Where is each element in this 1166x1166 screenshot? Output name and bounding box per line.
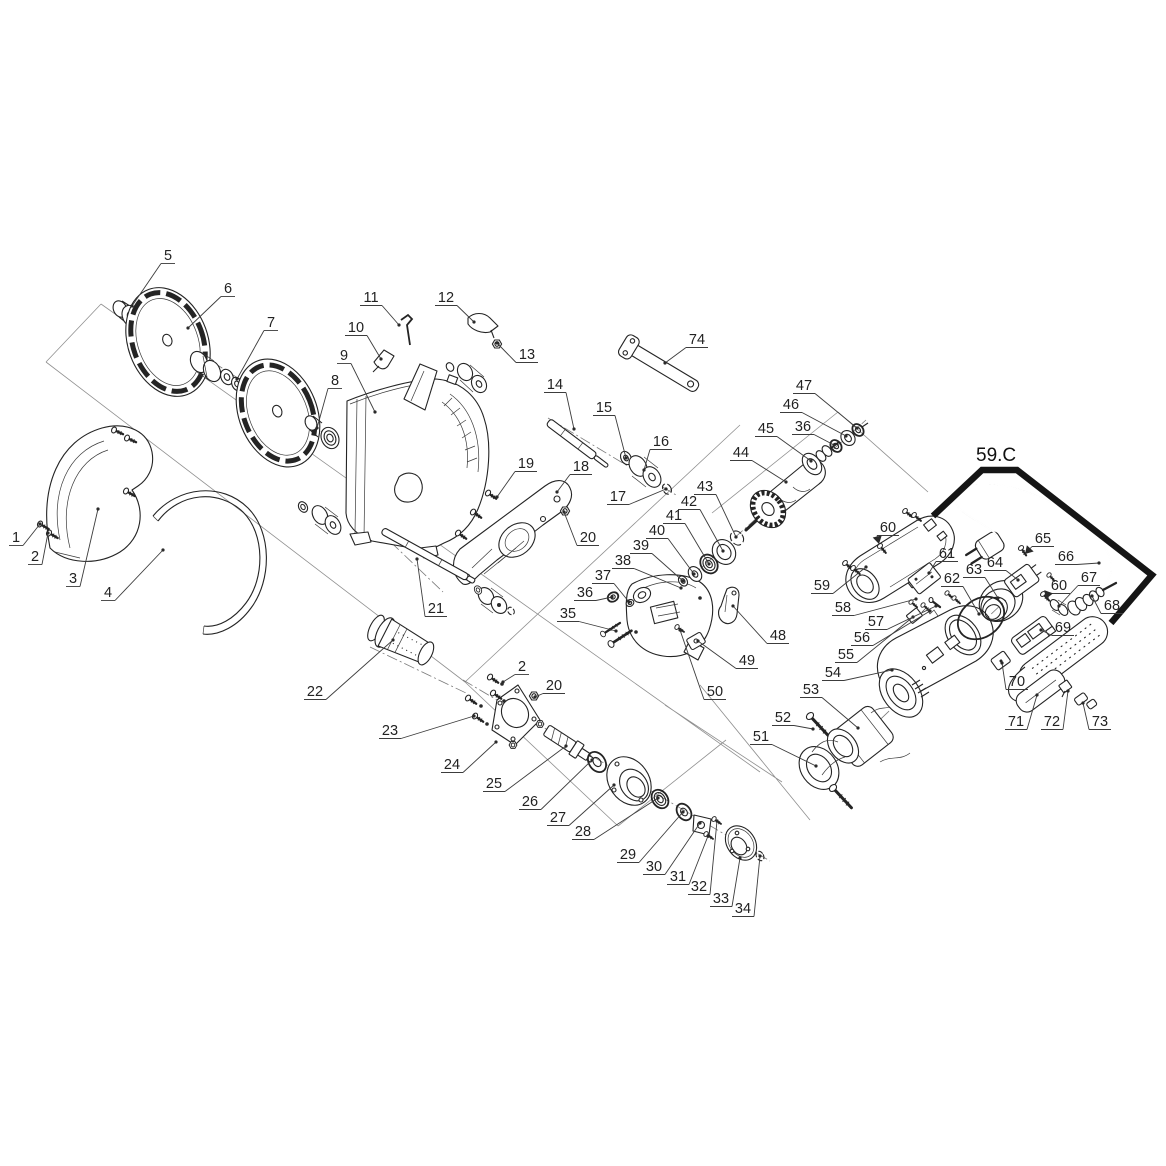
svg-text:16: 16 (653, 434, 669, 450)
svg-text:44: 44 (733, 445, 749, 461)
svg-text:32: 32 (691, 879, 707, 895)
svg-text:54: 54 (825, 665, 841, 681)
part-label-65: 65 (1025, 531, 1054, 554)
svg-text:2: 2 (518, 659, 526, 675)
svg-text:73: 73 (1092, 714, 1108, 730)
svg-text:28: 28 (575, 824, 591, 840)
part-label-1: 1 (9, 522, 42, 546)
svg-text:66: 66 (1058, 549, 1074, 565)
svg-text:39: 39 (633, 538, 649, 554)
svg-text:52: 52 (775, 710, 791, 726)
svg-text:37: 37 (595, 568, 611, 584)
svg-text:61: 61 (939, 546, 955, 562)
part-label-35: 35 (557, 606, 618, 633)
svg-text:74: 74 (689, 332, 705, 348)
svg-text:71: 71 (1008, 714, 1024, 730)
part-label-44: 44 (730, 445, 788, 484)
guide-roller-bottom (297, 500, 344, 537)
svg-text:53: 53 (803, 682, 819, 698)
bearing-28 (648, 787, 672, 812)
part-label-74: 74 (663, 332, 708, 365)
svg-text:23: 23 (382, 723, 398, 739)
svg-text:62: 62 (944, 571, 960, 587)
trigger-parts-73 (1074, 692, 1098, 709)
part-label-36: 36 (792, 419, 836, 447)
svg-text:20: 20 (546, 678, 562, 694)
exploded-parts-diagram-page: 59.C 12345678910111213141516171819202022… (0, 0, 1166, 1166)
svg-text:6: 6 (224, 281, 232, 297)
svg-text:12: 12 (438, 290, 454, 306)
svg-text:57: 57 (868, 614, 884, 630)
depth-lever (373, 350, 394, 372)
bearing-flange-27 (598, 748, 661, 814)
part-label-43: 43 (694, 479, 738, 539)
svg-text:69: 69 (1055, 620, 1071, 636)
svg-text:60: 60 (880, 520, 896, 536)
svg-text:13: 13 (519, 347, 535, 363)
svg-text:36: 36 (577, 585, 593, 601)
svg-text:31: 31 (670, 869, 686, 885)
mounting-plate (492, 685, 544, 748)
svg-text:2: 2 (31, 549, 39, 565)
part-label-2: 2 (28, 531, 50, 565)
part-label-10: 10 (345, 320, 383, 361)
part-label-60: 60 (1044, 578, 1070, 599)
switch-block (1003, 560, 1044, 598)
part-label-64: 64 (984, 555, 1020, 582)
svg-text:22: 22 (307, 684, 323, 700)
svg-text:24: 24 (444, 757, 460, 773)
part-label-17: 17 (607, 487, 668, 505)
svg-text:10: 10 (348, 320, 364, 336)
svg-text:27: 27 (550, 810, 566, 826)
guard-band (153, 491, 266, 634)
svg-text:59: 59 (814, 578, 830, 594)
svg-text:11: 11 (363, 290, 378, 306)
main-housing (346, 364, 489, 558)
svg-text:26: 26 (522, 794, 538, 810)
part-label-19: 19 (495, 456, 537, 499)
svg-text:56: 56 (854, 630, 870, 646)
part-label-24: 24 (441, 740, 498, 773)
part-label-66: 66 (1055, 549, 1101, 565)
svg-text:5: 5 (164, 248, 172, 264)
part-label-27: 27 (547, 783, 616, 826)
svg-text:34: 34 (735, 901, 751, 917)
part-label-49: 49 (696, 639, 758, 669)
part-label-26: 26 (519, 758, 594, 810)
svg-text:8: 8 (331, 373, 339, 389)
part-label-34: 34 (732, 854, 762, 917)
part-label-2: 2 (501, 659, 529, 684)
svg-text:21: 21 (428, 601, 444, 617)
svg-text:67: 67 (1081, 570, 1097, 586)
svg-text:68: 68 (1104, 598, 1120, 614)
svg-text:49: 49 (739, 653, 755, 669)
svg-text:47: 47 (796, 378, 812, 394)
svg-text:18: 18 (573, 459, 589, 475)
svg-text:29: 29 (620, 847, 636, 863)
part-label-40: 40 (646, 523, 696, 576)
svg-text:35: 35 (560, 606, 576, 622)
part-label-33: 33 (710, 856, 742, 907)
svg-text:51: 51 (753, 729, 769, 745)
svg-text:70: 70 (1009, 674, 1025, 690)
exploded-diagram: 59.C 12345678910111213141516171819202022… (0, 0, 1166, 1166)
svg-text:9: 9 (340, 348, 348, 364)
part-label-20: 20 (562, 510, 599, 546)
cap-70 (990, 651, 1011, 671)
svg-text:63: 63 (966, 562, 982, 578)
blade-guard (47, 426, 153, 561)
svg-text:25: 25 (486, 776, 502, 792)
svg-text:3: 3 (69, 571, 77, 587)
svg-text:55: 55 (838, 647, 854, 663)
part-label-15: 15 (593, 400, 628, 460)
part-label-11: 11 (360, 290, 401, 327)
svg-text:1: 1 (12, 530, 20, 546)
hex-wrench (401, 315, 412, 345)
part-label-20: 20 (533, 678, 565, 699)
svg-text:17: 17 (610, 489, 626, 505)
svg-text:4: 4 (104, 585, 112, 601)
part-label-48: 48 (731, 604, 789, 644)
gearbox-housing (626, 575, 712, 660)
svg-text:65: 65 (1035, 531, 1051, 547)
svg-text:41: 41 (666, 508, 682, 524)
svg-text:50: 50 (707, 684, 723, 700)
svg-text:36: 36 (795, 419, 811, 435)
svg-text:40: 40 (649, 523, 665, 539)
roller-16 (625, 452, 664, 490)
svg-text:7: 7 (267, 315, 275, 331)
part-label-23: 23 (379, 714, 476, 739)
svg-text:43: 43 (697, 479, 713, 495)
armature (743, 442, 839, 535)
svg-text:30: 30 (646, 859, 662, 875)
svg-text:20: 20 (580, 530, 596, 546)
svg-text:19: 19 (518, 456, 534, 472)
svg-text:15: 15 (596, 400, 612, 416)
svg-text:45: 45 (758, 421, 774, 437)
svg-text:46: 46 (783, 397, 799, 413)
svg-text:60: 60 (1051, 578, 1067, 594)
svg-text:14: 14 (547, 377, 563, 393)
svg-text:64: 64 (987, 555, 1003, 571)
lock-lever-48 (719, 587, 739, 623)
clamp-lever (468, 314, 498, 339)
callout-label: 59.C (976, 445, 1016, 466)
cutting-disc-1 (111, 276, 224, 409)
svg-text:48: 48 (770, 628, 786, 644)
part-label-25: 25 (483, 744, 568, 792)
svg-text:72: 72 (1044, 714, 1060, 730)
svg-text:33: 33 (713, 891, 729, 907)
part-label-6: 6 (186, 281, 235, 330)
cutting-disc-2 (221, 346, 335, 479)
svg-text:58: 58 (835, 600, 851, 616)
part-label-31: 31 (667, 834, 710, 885)
svg-text:38: 38 (615, 553, 631, 569)
svg-text:42: 42 (681, 494, 697, 510)
